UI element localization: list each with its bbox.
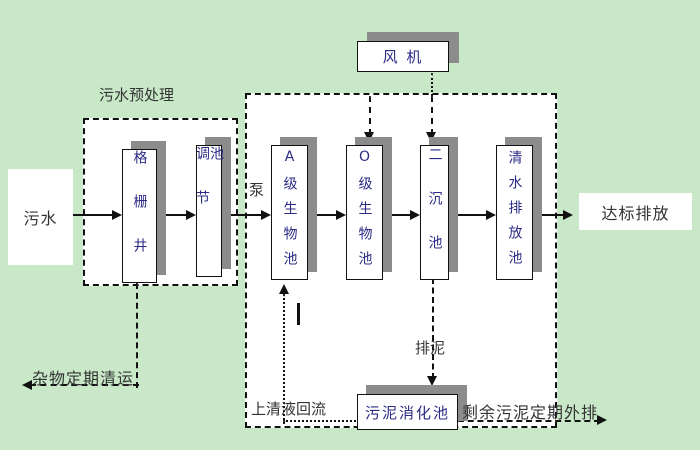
- excess-sludge-label: 剩余污泥定期外排: [462, 399, 598, 423]
- supernatant-line-horizontal: [283, 420, 360, 422]
- digestion-tank-box: 污泥消化池: [357, 394, 458, 430]
- outfall-box: 达标排放: [579, 193, 692, 230]
- flow-arrowhead-clearwater: [486, 210, 496, 220]
- flow-line-gridwell-regulating: [157, 214, 186, 216]
- supernatant-return-label: 上清液回流: [251, 398, 326, 419]
- sludge-discharge-label: 排泥: [415, 337, 445, 358]
- blower-air-line-secondary: [431, 96, 433, 135]
- grid-well-label: 格栅井: [133, 150, 147, 282]
- flow-line-source-gridwell: [73, 214, 112, 216]
- debris-arrowhead: [22, 380, 32, 390]
- regulating-tank-label: 调节池: [195, 146, 223, 276]
- flow-line-secondary-clearwater: [449, 214, 486, 216]
- stray-tick-mark: [297, 303, 300, 325]
- flow-arrowhead-abio: [261, 210, 271, 220]
- supernatant-arrowhead: [279, 284, 289, 294]
- pretreatment-title: 污水预处理: [99, 84, 174, 105]
- pump-label: 泵: [249, 179, 264, 200]
- clearwater-tank-label: 清水排放池: [508, 150, 522, 275]
- source-label: 污水: [23, 205, 57, 229]
- regulating-tank-box: 调节池: [196, 145, 222, 277]
- blower-label: 风 机: [383, 46, 424, 67]
- o-bio-tank-box: O级生物池: [346, 145, 383, 280]
- secondary-tank-box: 二沉池: [420, 145, 449, 280]
- secondary-tank-label: 二沉池: [428, 147, 442, 279]
- a-bio-tank-box: A级生物池: [271, 145, 308, 280]
- source-box: 污水: [8, 169, 73, 265]
- flow-arrowhead-secondary: [410, 210, 420, 220]
- blower-air-line-obio: [369, 96, 371, 135]
- flow-line-abio-obio: [308, 214, 336, 216]
- outfall-label: 达标排放: [601, 200, 669, 224]
- o-bio-tank-label: O级生物池: [358, 149, 372, 276]
- sludge-arrowhead: [427, 376, 437, 386]
- sludge-line: [432, 278, 434, 379]
- blower-arrowhead-secondary: [426, 132, 436, 142]
- wastewater-flow-diagram: 污水预处理 污水 达标排放 风 机 格栅井 调节池 A级生物池 O级生物池 二沉…: [0, 0, 700, 450]
- clearwater-tank-box: 清水排放池: [496, 145, 533, 280]
- blower-stem-line: [431, 73, 433, 96]
- grid-well-box: 格栅井: [122, 149, 157, 283]
- flow-arrowhead-gridwell: [112, 210, 122, 220]
- flow-arrowhead-outfall: [563, 210, 573, 220]
- flow-arrowhead-obio: [336, 210, 346, 220]
- blower-box: 风 机: [357, 41, 449, 72]
- flow-line-clearwater-outfall: [533, 214, 563, 216]
- digestion-tank-label: 污泥消化池: [365, 402, 450, 423]
- excess-sludge-arrowhead: [597, 415, 607, 425]
- flow-line-obio-secondary: [383, 214, 410, 216]
- flow-line-regulating-abio: [222, 214, 261, 216]
- debris-line-vertical: [136, 283, 138, 388]
- debris-removal-label: 杂物定期清运: [32, 365, 134, 389]
- a-bio-tank-label: A级生物池: [283, 149, 297, 276]
- blower-arrowhead-obio: [364, 132, 374, 142]
